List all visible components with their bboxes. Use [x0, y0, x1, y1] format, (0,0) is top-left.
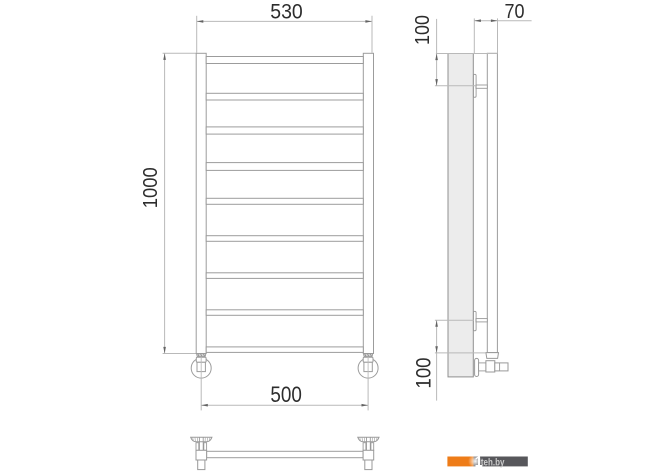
svg-text:teh.by: teh.by [481, 457, 505, 468]
svg-text:1000: 1000 [139, 167, 162, 208]
svg-text:530: 530 [270, 0, 303, 23]
svg-text:100: 100 [412, 357, 436, 388]
svg-text:70: 70 [505, 0, 525, 23]
svg-text:100: 100 [411, 15, 434, 45]
svg-text:500: 500 [270, 382, 302, 407]
